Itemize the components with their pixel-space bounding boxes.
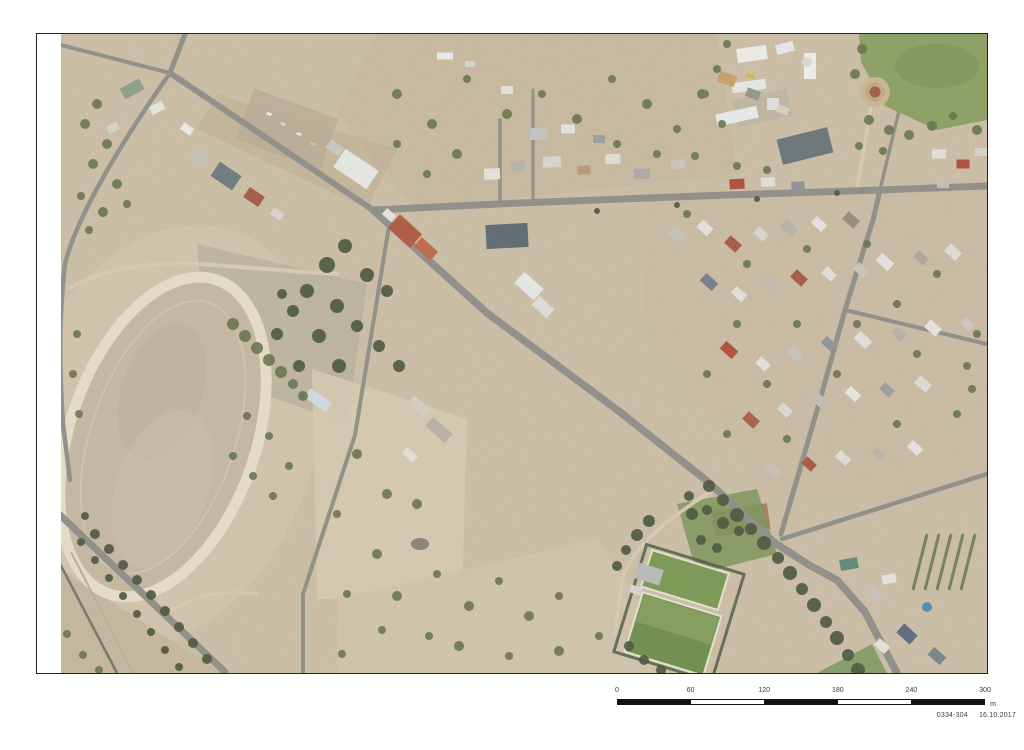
scale-tick: 0 [615, 687, 619, 694]
scale-tick: 300 [979, 687, 991, 694]
sheet-date: 16.10.2017 [979, 712, 1016, 719]
no-data-strip [37, 34, 61, 673]
sheet-reference: 0334-304 [937, 712, 968, 719]
scale-tick-labels: 0 60 120 180 240 300 [617, 687, 985, 697]
scale-segment [764, 699, 838, 705]
scale-segment [690, 699, 764, 705]
sheet-credit: 0334-30416.10.2017 [937, 712, 1016, 719]
scale-segment [837, 699, 911, 705]
scale-tick: 240 [906, 687, 918, 694]
scale-tick: 180 [832, 687, 844, 694]
scale-tick: 120 [758, 687, 770, 694]
photo-grain-overlay [37, 34, 987, 673]
scale-unit-label: m [990, 701, 996, 708]
scale-segment [911, 699, 985, 705]
scale-segment [617, 699, 691, 705]
aerial-imagery [37, 34, 987, 673]
scale-bar: 0 60 120 180 240 300 m [617, 687, 985, 705]
map-frame [36, 33, 988, 674]
scale-bar-segments: m [617, 699, 985, 705]
scale-tick: 60 [687, 687, 695, 694]
